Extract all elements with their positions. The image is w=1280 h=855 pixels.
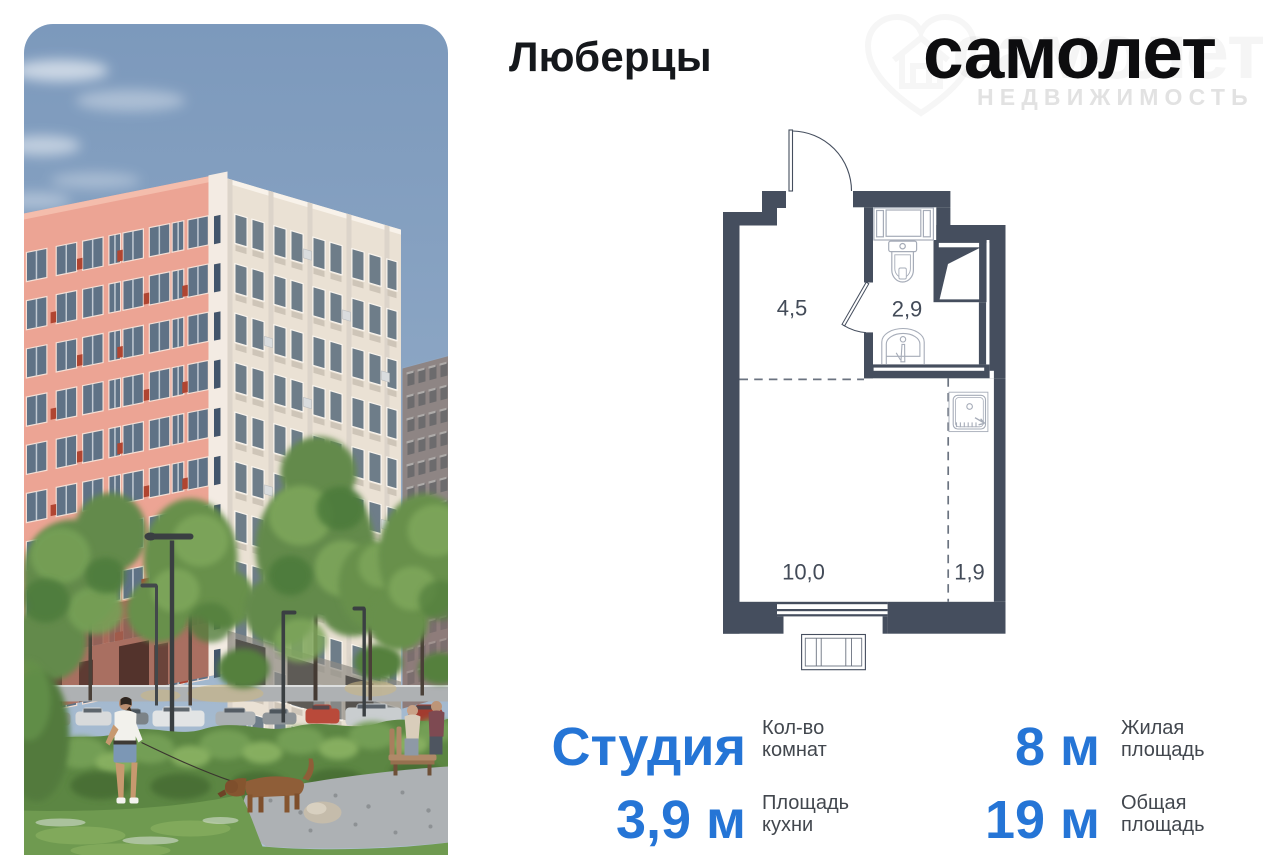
svg-text:2,9: 2,9 xyxy=(892,297,923,322)
svg-text:1,9: 1,9 xyxy=(954,560,985,585)
svg-text:4,5: 4,5 xyxy=(777,296,808,321)
svg-text:10,0: 10,0 xyxy=(782,560,825,585)
